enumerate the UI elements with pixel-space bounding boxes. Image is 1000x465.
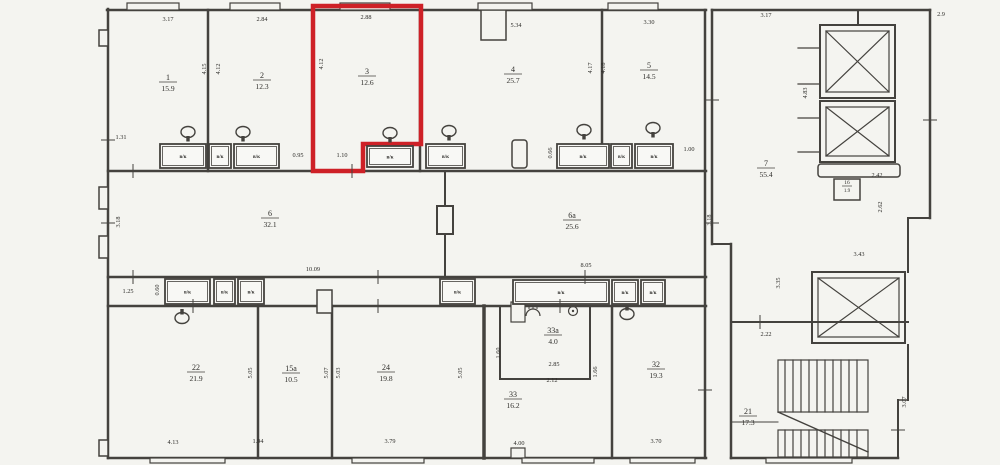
- dimension-label: 4.13: [167, 439, 178, 446]
- svg-text:25.6: 25.6: [565, 222, 578, 231]
- dimension-label: 3.18: [706, 214, 713, 225]
- svg-text:15.9: 15.9: [161, 84, 174, 93]
- svg-text:55.4: 55.4: [759, 170, 772, 179]
- svg-text:14.5: 14.5: [642, 72, 655, 81]
- vent-shaft-box: в/к: [238, 279, 264, 304]
- dimension-label: 4.12: [215, 63, 222, 74]
- vent-shaft-box: в/к: [165, 279, 210, 304]
- svg-text:5: 5: [647, 61, 651, 70]
- svg-text:в/к: в/к: [622, 291, 629, 296]
- dimension-label: 1.66: [592, 366, 599, 377]
- svg-text:в/к: в/к: [248, 291, 255, 296]
- dimension-label: 1.31: [115, 134, 126, 141]
- dimension-label: 4.18: [600, 62, 607, 73]
- plan-background: [0, 0, 1000, 465]
- svg-text:12.3: 12.3: [255, 82, 268, 91]
- svg-text:в/к: в/к: [618, 155, 625, 160]
- svg-text:в/к: в/к: [221, 291, 228, 296]
- svg-text:33a: 33a: [547, 326, 559, 335]
- vent-shaft-box: в/к: [635, 144, 673, 168]
- dimension-label: 3.79: [384, 438, 395, 445]
- dimension-label: 3.07: [901, 396, 908, 407]
- dimension-label: 1.10: [336, 152, 347, 159]
- dimension-label: 4.83: [802, 87, 809, 98]
- vent-shaft-box: в/к: [234, 144, 279, 168]
- dimension-label: 2.62: [877, 201, 884, 212]
- svg-text:32.1: 32.1: [263, 220, 276, 229]
- vent-shaft-box: в/к: [367, 146, 413, 167]
- svg-text:19.3: 19.3: [649, 371, 662, 380]
- svg-text:в/к: в/к: [253, 155, 260, 160]
- dimension-label: 3.35: [775, 277, 782, 288]
- dimension-label: 3.70: [650, 438, 661, 445]
- svg-text:в/к: в/к: [442, 155, 449, 160]
- dimension-label: 4.00: [513, 440, 524, 447]
- svg-text:21: 21: [744, 407, 752, 416]
- svg-text:25.7: 25.7: [506, 76, 519, 85]
- svg-text:в/к: в/к: [650, 291, 657, 296]
- dimension-label: 2.9: [937, 11, 945, 18]
- dimension-label: 3.30: [643, 19, 654, 26]
- dimension-label: 10.09: [306, 266, 320, 273]
- vent-shaft-box: в/к: [612, 280, 638, 304]
- svg-text:в/к: в/к: [651, 155, 658, 160]
- svg-text:1: 1: [166, 73, 170, 82]
- dimension-label: 5.03: [335, 367, 342, 378]
- svg-text:в/к: в/к: [184, 291, 191, 296]
- svg-text:24: 24: [382, 363, 390, 372]
- svg-text:17.3: 17.3: [741, 418, 754, 427]
- svg-text:19.8: 19.8: [379, 374, 392, 383]
- vent-shaft-box: в/к: [160, 144, 206, 168]
- dimension-label: 5.05: [247, 367, 254, 378]
- dimension-label: 3.17: [162, 16, 173, 23]
- vent-shaft-box: в/к: [440, 279, 475, 304]
- svg-text:33: 33: [509, 390, 517, 399]
- svg-text:2: 2: [260, 71, 264, 80]
- dimension-label: 2.84: [256, 16, 268, 23]
- svg-text:15a: 15a: [285, 364, 297, 373]
- svg-text:6a: 6a: [568, 211, 576, 220]
- svg-text:10.5: 10.5: [284, 375, 297, 384]
- dimension-label: 3.18: [115, 216, 122, 227]
- svg-text:в/к: в/к: [180, 155, 187, 160]
- svg-text:7: 7: [764, 159, 768, 168]
- vent-shaft-box: в/к: [426, 144, 465, 168]
- dimension-label: 1.60: [495, 347, 502, 358]
- floor-plan-drawing: 115.9212.3312.6425.7514.5632.16a25.6755.…: [0, 0, 1000, 465]
- svg-text:в/к: в/к: [217, 155, 224, 160]
- vent-shaft-box: в/к: [513, 280, 609, 304]
- floor-plan-page: { "plan": { "type": "architectural-floor…: [0, 0, 1000, 465]
- dimension-label: 0.60: [154, 284, 161, 295]
- svg-text:16.2: 16.2: [506, 401, 519, 410]
- vent-shaft-box: в/к: [214, 279, 235, 304]
- svg-text:в/к: в/к: [454, 291, 461, 296]
- dimension-label: 3.43: [853, 251, 864, 258]
- dimension-label: 2.88: [360, 14, 371, 21]
- svg-text:16: 16: [844, 180, 850, 186]
- svg-text:22: 22: [192, 363, 200, 372]
- svg-text:в/к: в/к: [387, 156, 394, 161]
- dimension-label: 0.95: [292, 152, 303, 159]
- dimension-label: 4.12: [318, 58, 325, 69]
- svg-text:4: 4: [511, 65, 515, 74]
- svg-text:6: 6: [268, 209, 272, 218]
- dimension-label: 8.05: [580, 262, 591, 269]
- vent-shaft-box: в/к: [611, 144, 632, 168]
- dimension-label: 4.17: [587, 62, 594, 73]
- svg-text:4.0: 4.0: [548, 337, 558, 346]
- dimension-label: 5.34: [510, 22, 522, 29]
- dimension-label: 2.22: [760, 331, 771, 338]
- dimension-label: 1.25: [122, 288, 133, 295]
- vent-shaft-box: в/к: [209, 144, 231, 168]
- svg-text:21.9: 21.9: [189, 374, 202, 383]
- dimension-label: 4.15: [201, 63, 208, 74]
- dimension-label: 2.42: [871, 172, 882, 179]
- svg-text:в/к: в/к: [580, 155, 587, 160]
- svg-text:12.6: 12.6: [360, 78, 373, 87]
- dimension-label: 1.94: [252, 438, 264, 445]
- dimension-label: 5.07: [323, 367, 330, 378]
- vent-shaft-box: в/к: [557, 144, 609, 168]
- dimension-label: 3.17: [760, 12, 771, 19]
- svg-text:32: 32: [652, 360, 660, 369]
- dimension-label: 2.12: [546, 377, 557, 384]
- svg-text:в/к: в/к: [558, 291, 565, 296]
- dimension-label: 1.00: [683, 146, 694, 153]
- dimension-label: 0.66: [547, 147, 554, 158]
- vent-shaft-box: в/к: [641, 280, 665, 304]
- svg-text:3: 3: [365, 67, 369, 76]
- dimension-label: 5.05: [457, 367, 464, 378]
- svg-text:1.9: 1.9: [844, 189, 851, 194]
- dimension-label: 2.85: [548, 361, 559, 368]
